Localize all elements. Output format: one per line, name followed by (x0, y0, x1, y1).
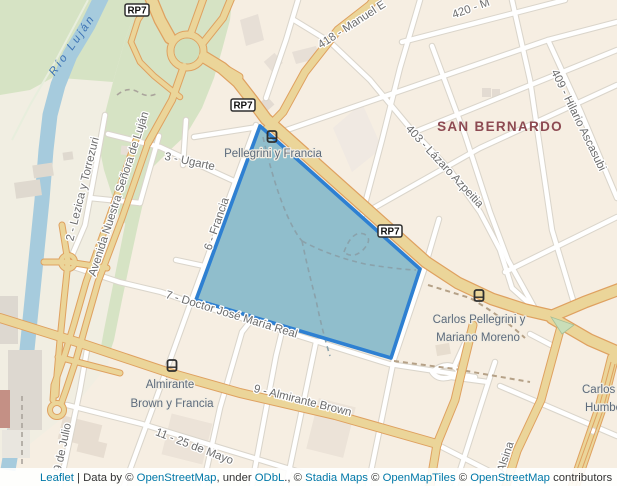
svg-text:Carlos H: Carlos H (582, 384, 617, 396)
svg-text:Mariano Moreno: Mariano Moreno (436, 332, 520, 344)
svg-text:SAN BERNARDO: SAN BERNARDO (437, 119, 563, 134)
svg-text:Pellegrini y Francia: Pellegrini y Francia (224, 148, 322, 160)
svg-text:Carlos Pellegrini y: Carlos Pellegrini y (433, 314, 526, 326)
svg-text:Leaflet | Data by © OpenStreet: Leaflet | Data by © OpenStreetMap, under… (40, 472, 612, 484)
svg-text:RP7: RP7 (127, 6, 147, 17)
svg-text:Brown y Francia: Brown y Francia (130, 398, 214, 410)
svg-text:RP7: RP7 (380, 227, 400, 238)
svg-text:RP7: RP7 (233, 101, 253, 112)
svg-text:Humbert: Humbert (585, 402, 617, 414)
svg-text:Almirante: Almirante (146, 379, 195, 391)
